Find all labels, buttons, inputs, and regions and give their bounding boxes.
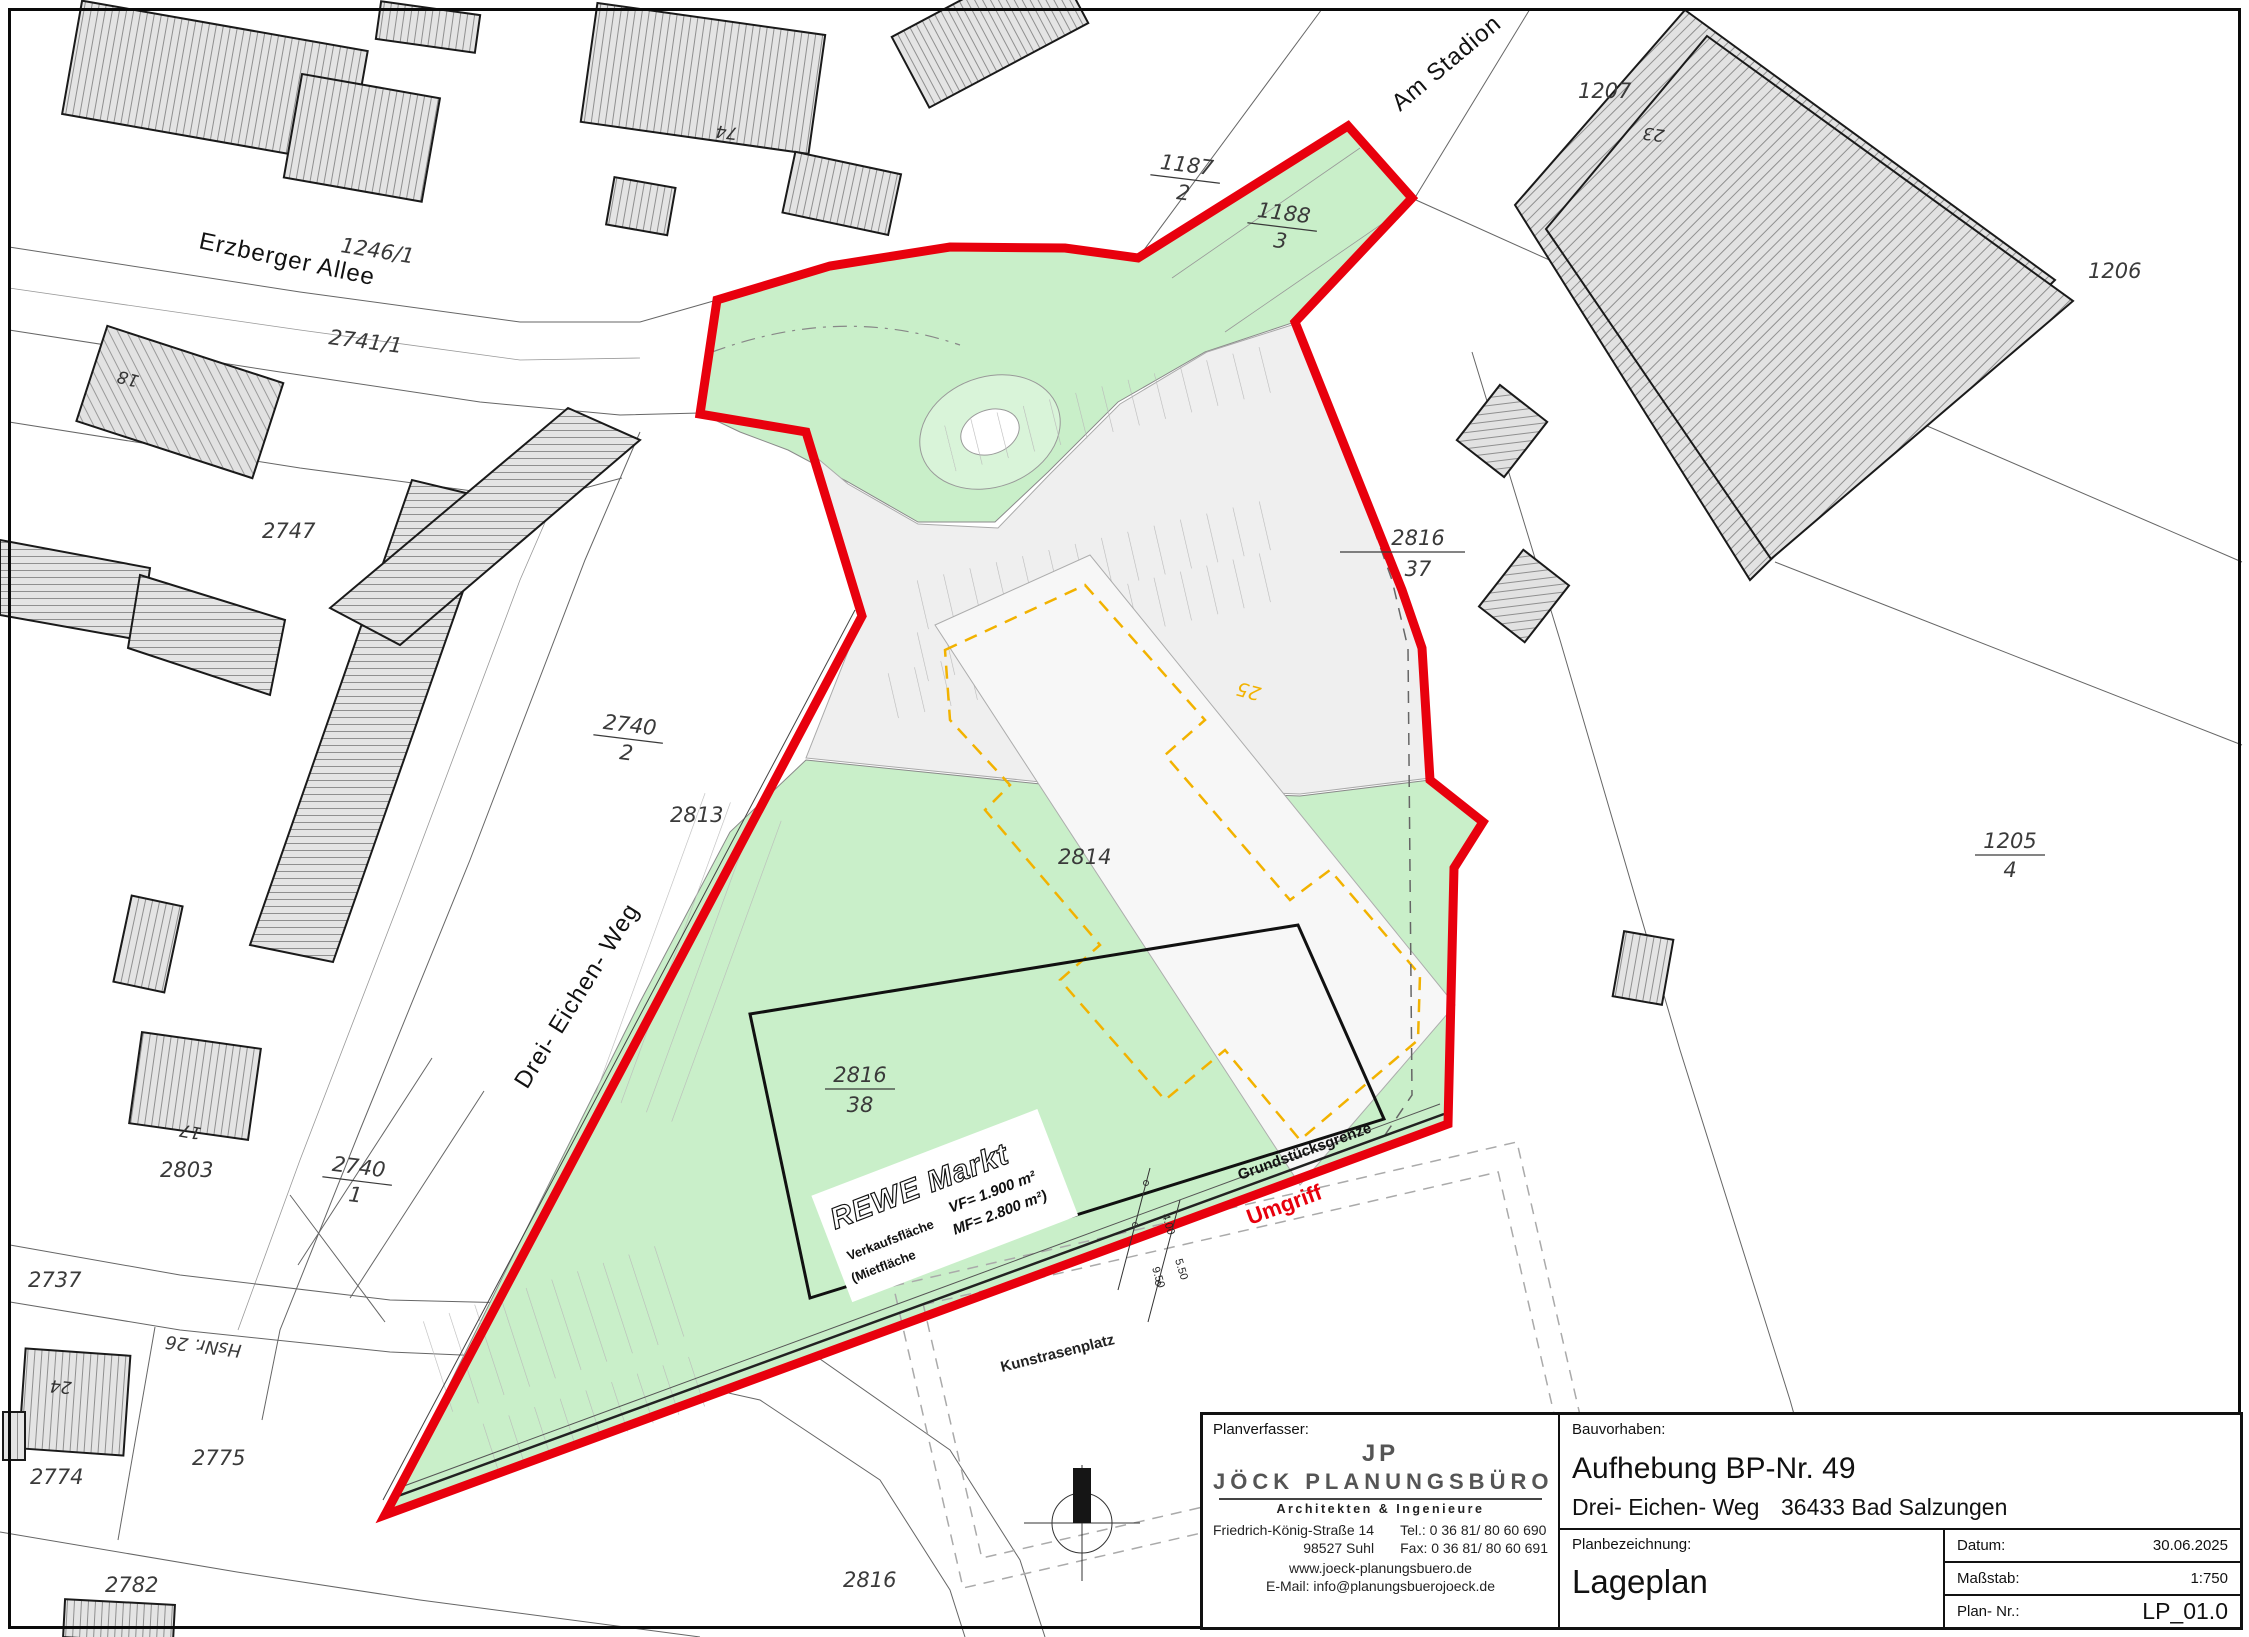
parcel-label-2816: 2816 [843, 1568, 896, 1592]
parcel-1205-numerator: 1205 [1983, 829, 2036, 853]
massstab-value: 1:750 [2190, 1570, 2228, 1587]
divider [1219, 1498, 1542, 1500]
title-block: Planverfasser: JP JÖCK PLANUNGSBÜRO Arch… [1200, 1412, 2243, 1630]
building-24-annex [3, 1412, 25, 1460]
plannr-label: Plan- Nr.: [1957, 1603, 2020, 1620]
planverfasser-cell: Planverfasser: JP JÖCK PLANUNGSBÜRO Arch… [1203, 1415, 1560, 1627]
site-plan-drawing: 25 Kunstrasenplatz 4.00 5.50 9.50 Erzber… [0, 0, 2249, 1637]
title-block-right: Bauvorhaben: Aufhebung BP-Nr. 49 Drei- E… [1560, 1415, 2240, 1627]
company-email: E-Mail: info@planungsbuerojoeck.de [1213, 1577, 1548, 1595]
plan-meta-cell: Datum: 30.06.2025 Maßstab: 1:750 Plan- N… [1945, 1530, 2240, 1627]
building-24 [19, 1348, 131, 1455]
parcel-2816-37-denominator: 37 [1405, 557, 1432, 581]
bauvorhaben-cell: Bauvorhaben: Aufhebung BP-Nr. 49 Drei- E… [1560, 1415, 2240, 1530]
planverfasser-label: Planverfasser: [1213, 1421, 1548, 1438]
house-number-23: 23 [1642, 122, 1666, 144]
company-name: JÖCK PLANUNGSBÜRO [1213, 1469, 1548, 1495]
building-small-1 [606, 177, 675, 235]
logo-initials: JP [1213, 1440, 1548, 1468]
massstab-label: Maßstab: [1957, 1570, 2020, 1587]
datum-value: 30.06.2025 [2153, 1537, 2228, 1554]
plannr-row: Plan- Nr.: LP_01.0 [1945, 1596, 2240, 1627]
parcel-label-2782: 2782 [105, 1573, 158, 1597]
parcel-label-2814: 2814 [1058, 845, 1111, 869]
parcel-2816-38-numerator: 2816 [833, 1063, 886, 1087]
building-2782 [63, 1599, 175, 1637]
house-number-24: 24 [49, 1375, 72, 1397]
house-number-74: 74 [715, 120, 739, 142]
parcel-label-2775: 2775 [192, 1446, 245, 1470]
project-street: Drei- Eichen- Weg [1572, 1494, 1781, 1521]
project-title: Aufhebung BP-Nr. 49 [1572, 1452, 2228, 1486]
site-plan-sheet: 25 Kunstrasenplatz 4.00 5.50 9.50 Erzber… [0, 0, 2249, 1637]
parcel-label-2737: 2737 [28, 1268, 82, 1292]
house-number-17: 17 [178, 1119, 203, 1142]
fax-number: Fax: 0 36 81/ 80 60 691 [1400, 1540, 1548, 1558]
company-address: Friedrich-König-Straße 14 98527 Suhl Tel… [1213, 1522, 1548, 1557]
building-small-6 [1613, 931, 1674, 1005]
parcel-label-1206: 1206 [2088, 259, 2141, 283]
planbezeichnung-label: Planbezeichnung: [1572, 1536, 1931, 1553]
datum-row: Datum: 30.06.2025 [1945, 1530, 2240, 1563]
parcel-1205-denominator: 4 [2003, 858, 2016, 882]
bauvorhaben-label: Bauvorhaben: [1572, 1421, 2228, 1438]
massstab-row: Maßstab: 1:750 [1945, 1563, 2240, 1596]
project-city: 36433 Bad Salzungen [1781, 1494, 2007, 1521]
parcel-label-2813: 2813 [670, 803, 723, 827]
parcel-label-1207: 1207 [1578, 79, 1632, 103]
address-line-2: 98527 Suhl [1213, 1540, 1374, 1558]
company-subtitle: Architekten & Ingenieure [1213, 1502, 1548, 1516]
company-logo: JP JÖCK PLANUNGSBÜRO Architekten & Ingen… [1213, 1440, 1548, 1516]
plannr-value: LP_01.0 [2142, 1598, 2228, 1625]
company-website: www.joeck-planungsbuero.de [1213, 1559, 1548, 1577]
parcel-label-2747: 2747 [262, 519, 316, 543]
datum-label: Datum: [1957, 1537, 2005, 1554]
parcel-label-2803: 2803 [160, 1158, 213, 1182]
planbezeichnung-cell: Planbezeichnung: Lageplan [1560, 1530, 1945, 1627]
parcel-label-2774: 2774 [30, 1465, 83, 1489]
address-line-1: Friedrich-König-Straße 14 [1213, 1522, 1374, 1540]
plan-name: Lageplan [1572, 1563, 1931, 1601]
parcel-2816-38-denominator: 38 [847, 1093, 874, 1117]
phone-number: Tel.: 0 36 81/ 80 60 690 [1400, 1522, 1548, 1540]
parcel-2816-37-numerator: 2816 [1391, 526, 1444, 550]
